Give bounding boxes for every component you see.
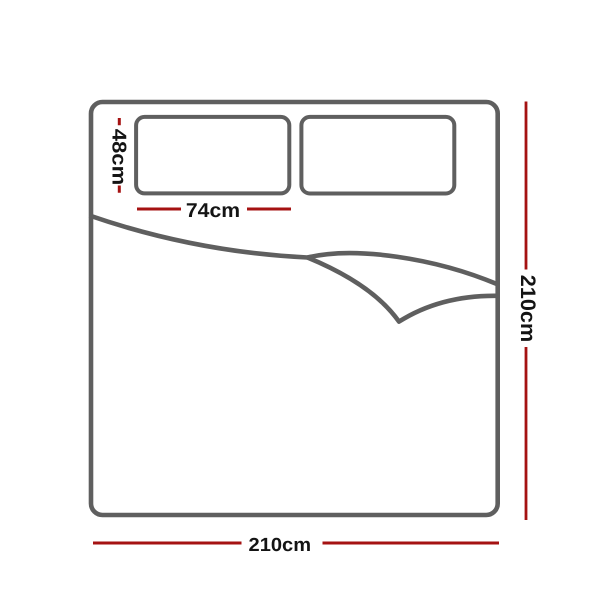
svg-text:74cm: 74cm <box>186 200 240 222</box>
svg-text:210cm: 210cm <box>249 535 312 556</box>
svg-text:210cm: 210cm <box>516 275 539 343</box>
svg-text:48cm: 48cm <box>107 129 129 186</box>
